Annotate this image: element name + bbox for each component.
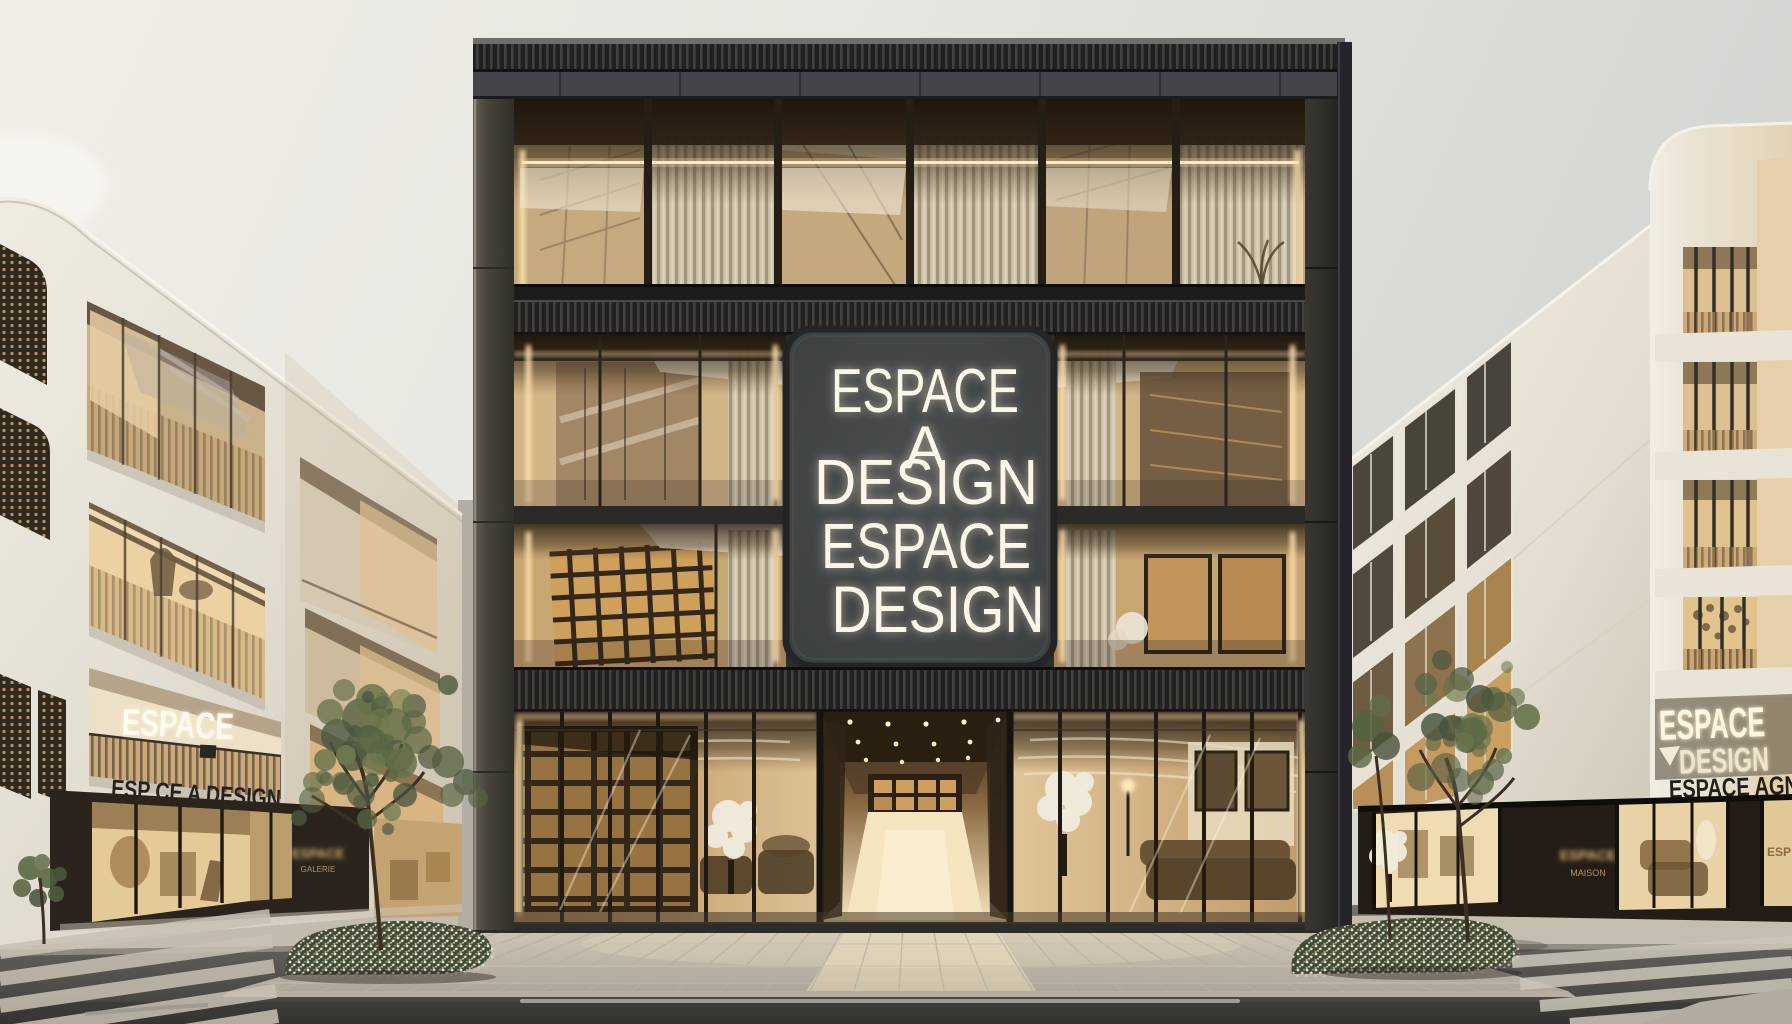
svg-text:ESPACE: ESPACE (1560, 847, 1617, 863)
svg-text:MAISON: MAISON (1570, 868, 1606, 878)
svg-text:ESP: ESP (1767, 845, 1791, 859)
svg-text:DESIGN: DESIGN (832, 572, 1045, 646)
svg-text:DESIGN: DESIGN (814, 446, 1038, 518)
svg-text:ESPACE: ESPACE (121, 702, 235, 748)
svg-text:GALERIE: GALERIE (301, 865, 336, 874)
svg-text:ESPACE: ESPACE (292, 846, 345, 861)
